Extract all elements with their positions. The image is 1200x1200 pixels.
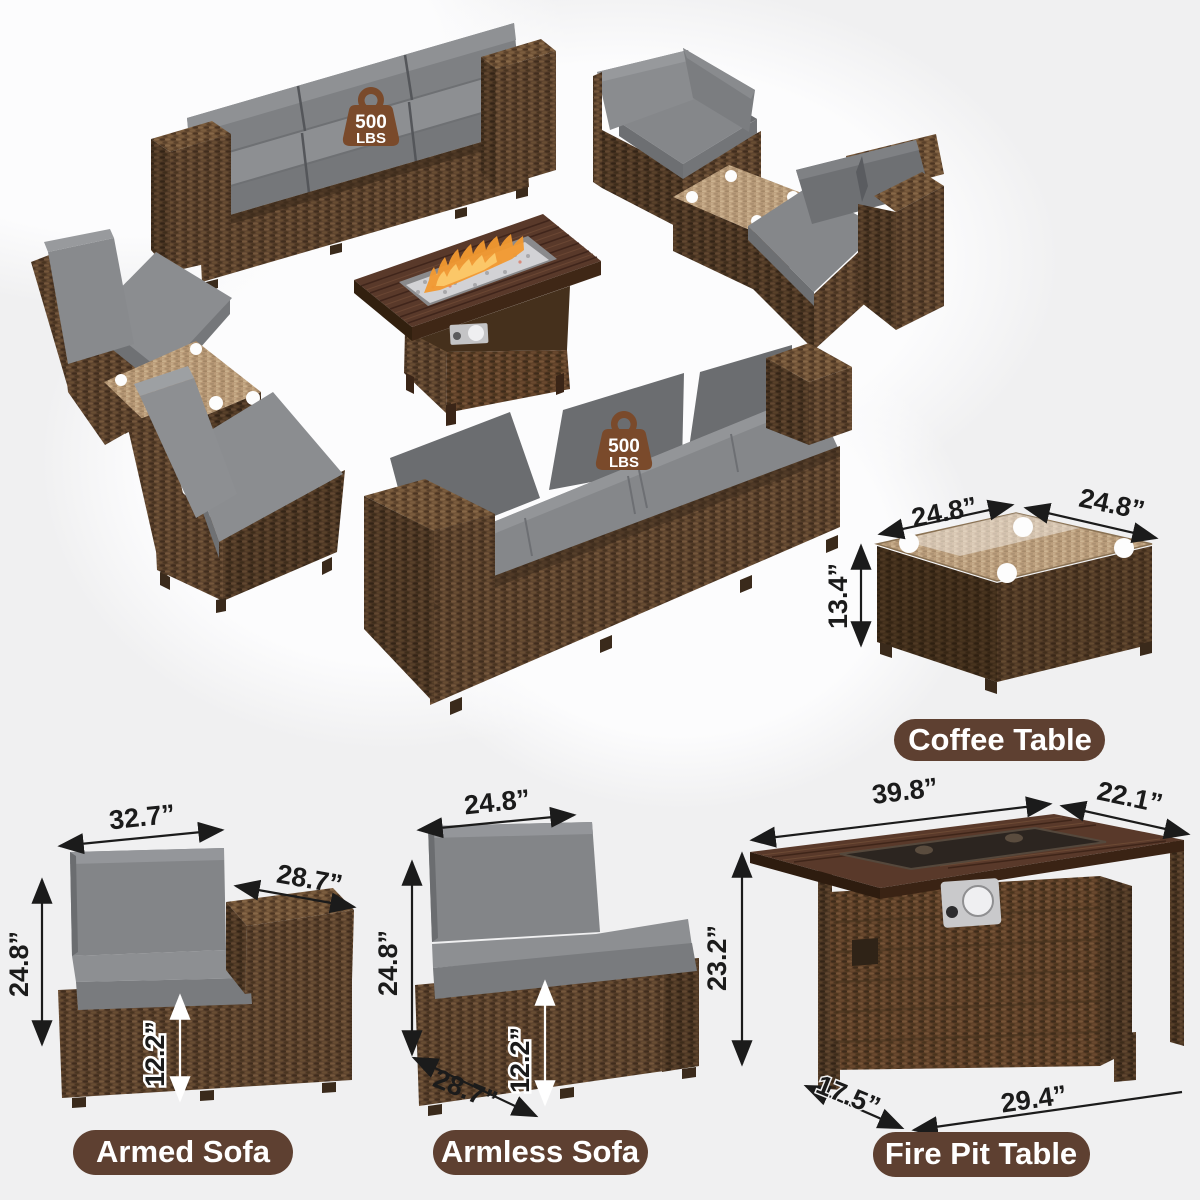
svg-text:Coffee Table: Coffee Table [908, 722, 1092, 757]
svg-text:Armless Sofa: Armless Sofa [441, 1134, 640, 1169]
svg-text:LBS: LBS [356, 130, 386, 147]
svg-text:12.2”: 12.2” [140, 1021, 170, 1087]
svg-text:23.2”: 23.2” [702, 925, 732, 991]
svg-text:13.4”: 13.4” [823, 563, 853, 629]
svg-text:12.2”: 12.2” [505, 1027, 535, 1093]
svg-text:24.8”: 24.8” [373, 930, 403, 996]
svg-text:Armed Sofa: Armed Sofa [96, 1134, 271, 1169]
svg-text:24.8”: 24.8” [4, 931, 34, 997]
svg-text:Fire Pit Table: Fire Pit Table [885, 1136, 1077, 1171]
svg-text:LBS: LBS [609, 454, 639, 471]
